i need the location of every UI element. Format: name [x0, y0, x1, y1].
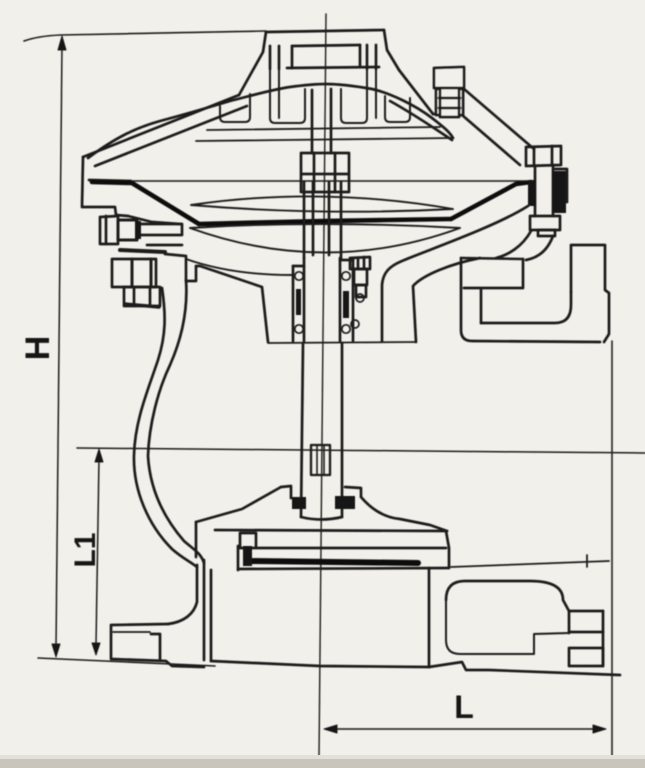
- svg-text:H: H: [19, 336, 57, 361]
- svg-text:L: L: [454, 689, 474, 725]
- svg-text:L1: L1: [69, 532, 102, 567]
